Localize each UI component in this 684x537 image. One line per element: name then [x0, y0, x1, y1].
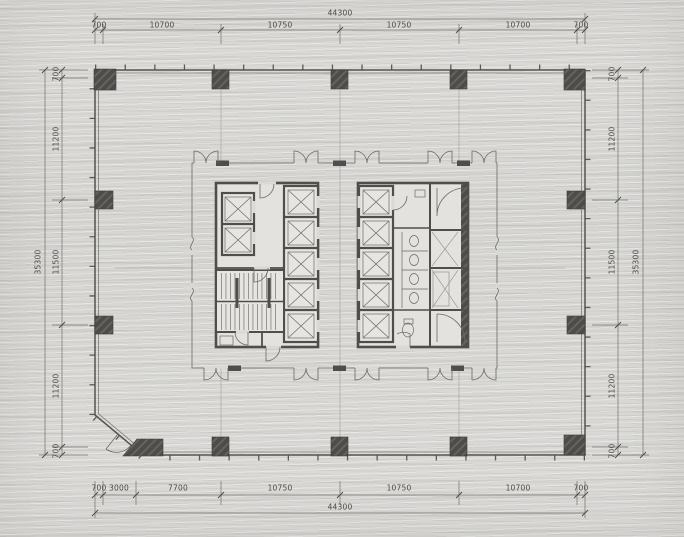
dim-bottom-seg-1: 3000	[109, 484, 129, 492]
dim-left-seg-3: 11200	[52, 374, 60, 399]
grid-lines	[115, 90, 565, 437]
dim-top-seg-0: 700	[92, 21, 107, 29]
dim-top-seg-3: 10750	[387, 21, 412, 29]
dim-left-total: 35300	[34, 250, 42, 275]
scissor-stairs	[216, 270, 284, 332]
dim-bottom-seg-6: 700	[574, 484, 589, 492]
dim-left-seg-0: 700	[52, 67, 60, 82]
dim-top-seg-2: 10750	[268, 21, 293, 29]
dim-right-seg-1: 11200	[608, 127, 616, 152]
dim-top-seg-1: 10700	[150, 21, 175, 29]
dim-left-seg-2: 11500	[52, 250, 60, 275]
dim-right-seg-3: 11200	[608, 374, 616, 399]
service-elevators	[222, 193, 254, 255]
dim-bottom-seg-4: 10750	[387, 484, 412, 492]
dim-bottom-seg-2: 7700	[168, 484, 188, 492]
dim-left-seg-4: 700	[52, 444, 60, 459]
dim-top-seg-5: 700	[574, 21, 589, 29]
dim-bottom-seg-0: 700	[92, 484, 107, 492]
dim-right-seg-4: 700	[608, 444, 616, 459]
dim-bottom-total: 44300	[328, 503, 353, 511]
perimeter-columns	[94, 69, 585, 456]
dim-top-seg-4: 10700	[506, 21, 531, 29]
dim-right-seg-0: 700	[608, 67, 616, 82]
floor-plan-sheet: 44300 700 10700 10750 10750 10700 700 44…	[0, 0, 684, 537]
dim-bottom-seg-5: 10700	[506, 484, 531, 492]
dim-top-total: 44300	[328, 9, 353, 17]
dim-right-seg-2: 11500	[608, 250, 616, 275]
floor-plan-drawing	[0, 0, 684, 537]
dim-left-seg-1: 11200	[52, 127, 60, 152]
dim-bottom-seg-3: 10750	[268, 484, 293, 492]
west-core-block	[216, 183, 318, 361]
dim-right-total: 35300	[632, 250, 640, 275]
